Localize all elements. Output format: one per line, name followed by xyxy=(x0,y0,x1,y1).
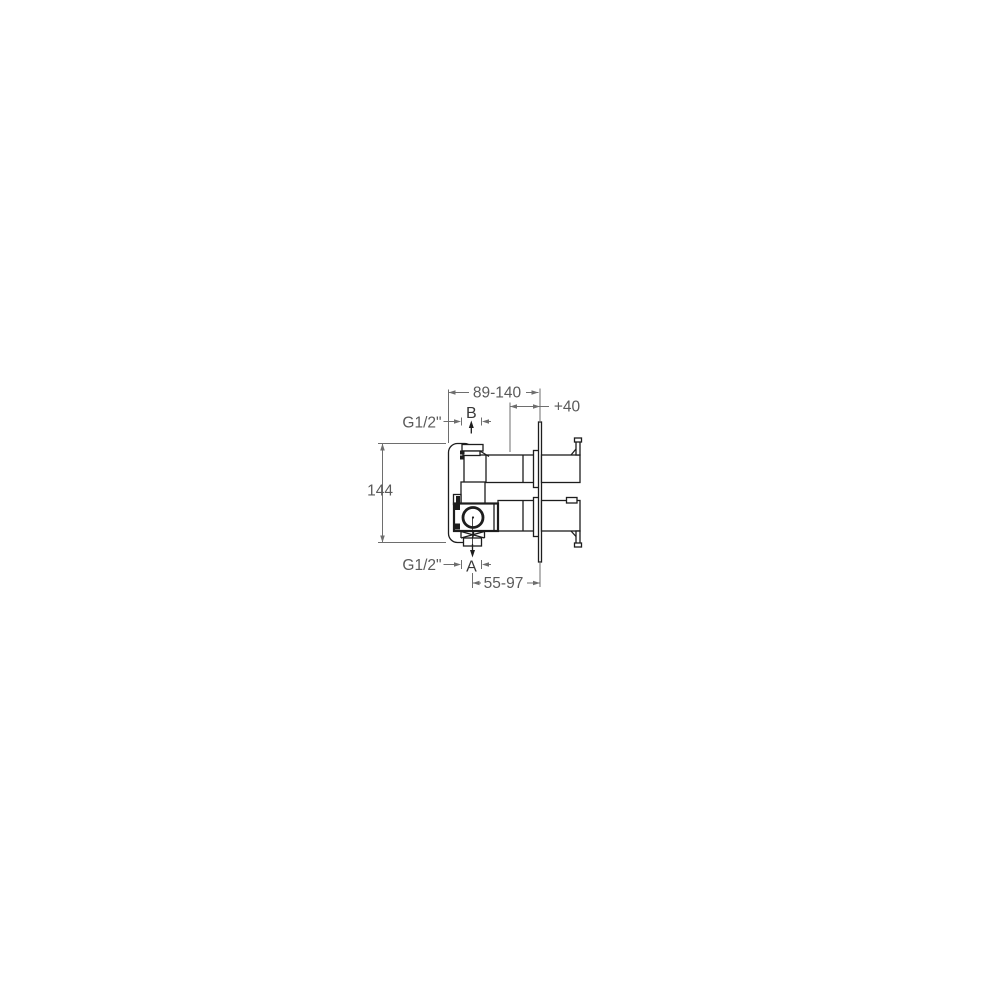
port-a-label: A xyxy=(466,559,477,576)
thread-label-top: G1/2" xyxy=(402,415,441,432)
mixer-cartridge xyxy=(463,508,483,528)
dim-height-label: 144 xyxy=(367,483,393,500)
dim-height: 144 xyxy=(367,444,446,543)
wall-flange xyxy=(534,422,542,562)
port-b-label: B xyxy=(466,405,477,422)
dim-bottom-offset-label: 55-97 xyxy=(484,575,524,592)
dim-depth-range: 89-140 xyxy=(449,385,541,444)
dim-depth-range-label: 89-140 xyxy=(473,385,522,402)
supply-pipe-top xyxy=(542,438,582,483)
technical-drawing: 89-140 +40 G1/2" B xyxy=(0,0,1000,1000)
port-b-callout: G1/2" B xyxy=(402,405,491,434)
flow-arrow-up-port-b xyxy=(469,421,474,434)
dim-extension-label: +40 xyxy=(554,399,581,416)
diagram-canvas: 89-140 +40 G1/2" B xyxy=(0,0,1000,1000)
thread-label-bottom: G1/2" xyxy=(402,557,441,574)
supply-pipe-bottom xyxy=(542,498,582,548)
dim-bottom-offset: 55-97 xyxy=(473,562,541,592)
dim-extension: +40 xyxy=(510,399,581,453)
